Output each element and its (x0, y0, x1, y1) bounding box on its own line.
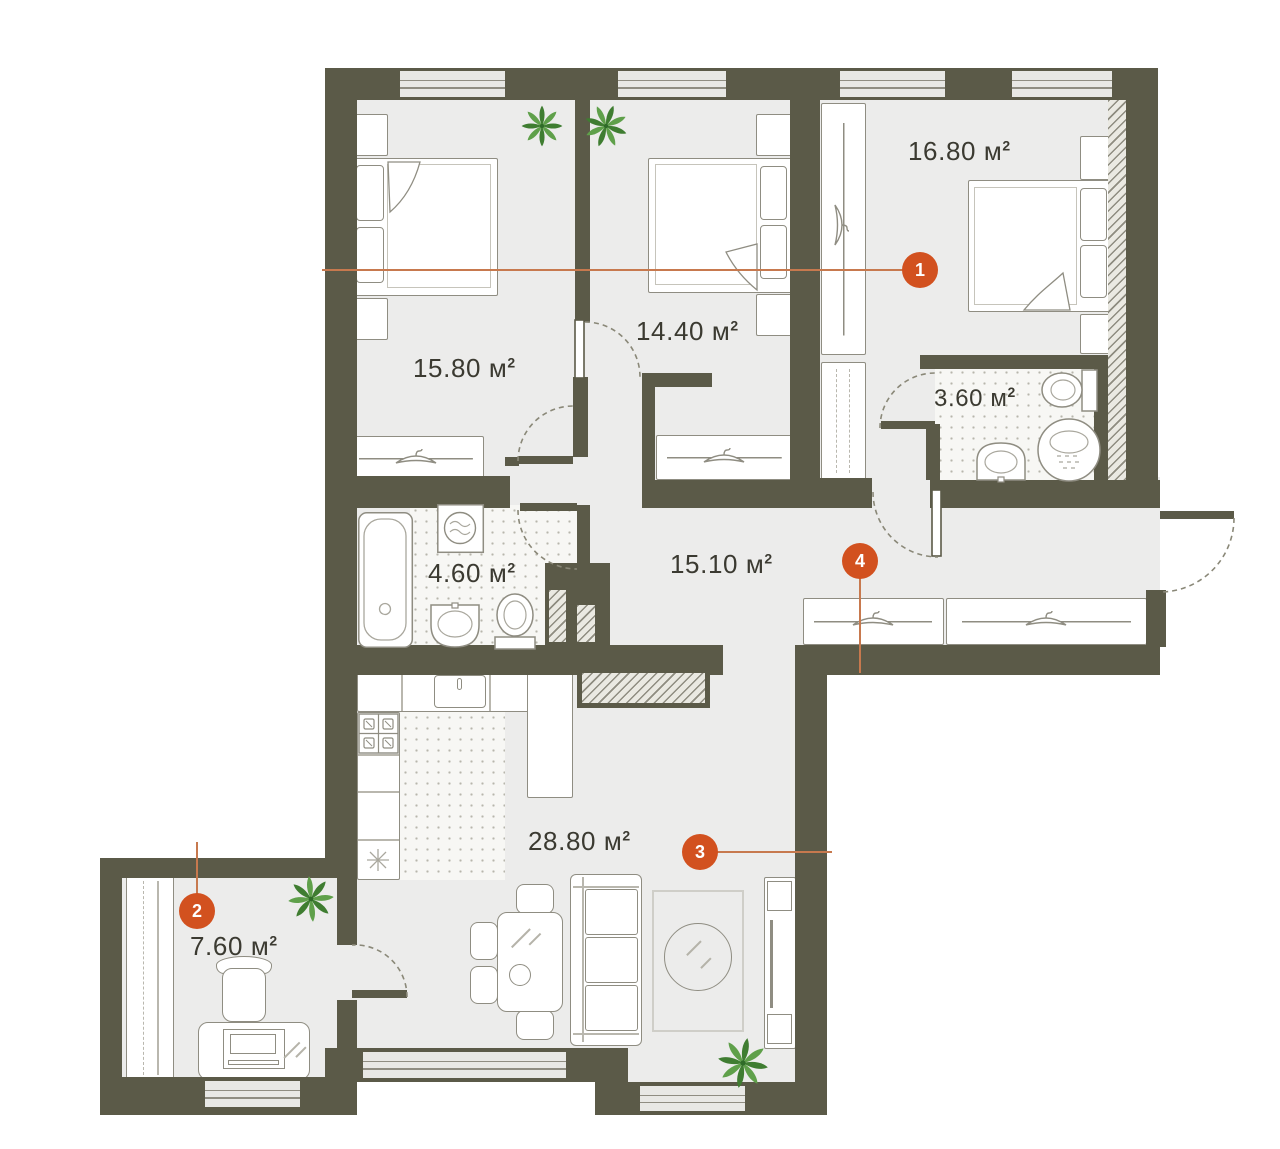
shelf-line (836, 369, 837, 473)
nightstand (756, 114, 794, 156)
counter-divider (489, 671, 491, 711)
wardrobe (348, 436, 484, 481)
wall (642, 373, 712, 387)
shaft-hatch (577, 605, 595, 642)
area-label-bathroom: 4.60 м2 (428, 558, 516, 589)
pillow (356, 165, 384, 221)
fridge (527, 672, 573, 798)
speaker (767, 1014, 792, 1044)
shelf-line (157, 881, 159, 1075)
bookshelf (126, 872, 174, 1082)
wardrobe (656, 435, 793, 480)
tall-wardrobe (821, 103, 866, 355)
faucet (457, 678, 462, 690)
window (1012, 71, 1112, 97)
wall (920, 355, 1108, 369)
area-label-living: 28.80 м2 (528, 826, 631, 857)
kitchen-column (357, 712, 400, 880)
leader-line-3 (717, 851, 832, 853)
wall (820, 478, 872, 508)
window (205, 1081, 300, 1107)
cabinet-divider (358, 791, 399, 793)
marker-2[interactable]: 2 (179, 893, 215, 929)
marker-4[interactable]: 4 (842, 543, 878, 579)
mattress (655, 164, 757, 285)
dining-chair (470, 922, 498, 960)
window (400, 71, 505, 97)
pillow (1080, 188, 1107, 241)
wall (100, 858, 122, 1085)
pillow (356, 227, 384, 283)
wall (1126, 100, 1158, 480)
window (363, 1052, 566, 1078)
dining-chair (516, 884, 554, 914)
area-label-hallway: 15.10 м2 (670, 549, 773, 580)
wall (926, 424, 940, 480)
dining-chair (516, 1010, 554, 1040)
sofa-armrest (573, 1033, 639, 1035)
window (618, 71, 726, 97)
wall (325, 476, 510, 508)
sofa (570, 874, 642, 1046)
office-chair (222, 968, 266, 1022)
shelf-line (143, 881, 144, 1075)
area-label-bedroom-3: 16.80 м2 (908, 136, 1011, 167)
tv-stand (764, 877, 796, 1049)
wall (505, 457, 519, 466)
wall (577, 505, 590, 567)
wall (1094, 367, 1108, 480)
shaft-hatch (549, 590, 566, 642)
window (840, 71, 945, 97)
pillow (760, 166, 787, 220)
table-shine (529, 933, 541, 945)
dining-chair (470, 966, 498, 1004)
sofa-armrest (573, 886, 639, 888)
marker-1[interactable]: 1 (902, 252, 938, 288)
dining-table (497, 912, 563, 1012)
wall (325, 68, 357, 878)
pillow (1080, 245, 1107, 298)
bed (350, 158, 498, 296)
tv-screen (770, 920, 773, 1008)
wall (790, 100, 820, 508)
bed (968, 180, 1114, 312)
wall (575, 100, 590, 322)
leader-line-1 (322, 269, 903, 271)
wall (337, 878, 357, 945)
sofa-cushion (585, 985, 638, 1031)
shaft-hatch (1108, 100, 1126, 480)
sofa-back (582, 877, 584, 1042)
leader-line-2 (196, 842, 198, 895)
shelf-cabinet (821, 362, 866, 480)
wall (107, 858, 357, 878)
kitchen-sink (434, 675, 486, 708)
hall-wardrobe (803, 598, 944, 645)
sofa-cushion (585, 937, 638, 983)
wall (642, 387, 655, 480)
wall (795, 645, 1160, 675)
window (640, 1086, 745, 1111)
area-label-bedroom-1: 15.80 м2 (413, 353, 516, 384)
wall (1146, 590, 1166, 647)
leader-line-4 (859, 578, 861, 673)
desk-shine (295, 1047, 306, 1058)
nightstand (756, 294, 794, 336)
floor-plan: 15.80 м2 14.40 м2 16.80 м2 3.60 м2 4.60 … (0, 0, 1280, 1149)
cabinet-divider (358, 839, 399, 841)
vase (509, 964, 531, 986)
bed (648, 158, 794, 293)
wall (337, 1000, 357, 1048)
sofa-cushion (585, 889, 638, 935)
area-label-bathroom-small: 3.60 м2 (934, 384, 1016, 413)
wall (573, 377, 588, 457)
speaker (767, 881, 792, 911)
area-label-cabinet: 7.60 м2 (190, 931, 278, 962)
table-shine (686, 940, 701, 955)
vent-box (577, 668, 710, 708)
tile-kitchen (400, 712, 505, 880)
wall (795, 645, 827, 1115)
desk (198, 1022, 310, 1080)
coffee-table (664, 923, 732, 991)
table-shine (700, 958, 711, 969)
hall-wardrobe (946, 598, 1147, 645)
marker-3[interactable]: 3 (682, 834, 718, 870)
mattress (974, 187, 1077, 305)
wall (642, 480, 790, 508)
cabinet-divider (358, 754, 399, 756)
area-label-bedroom-2: 14.40 м2 (636, 316, 739, 347)
table-shine (511, 928, 530, 947)
counter-divider (401, 671, 403, 711)
wall (930, 480, 1160, 508)
laptop (223, 1029, 285, 1069)
shelf-line (849, 369, 850, 473)
